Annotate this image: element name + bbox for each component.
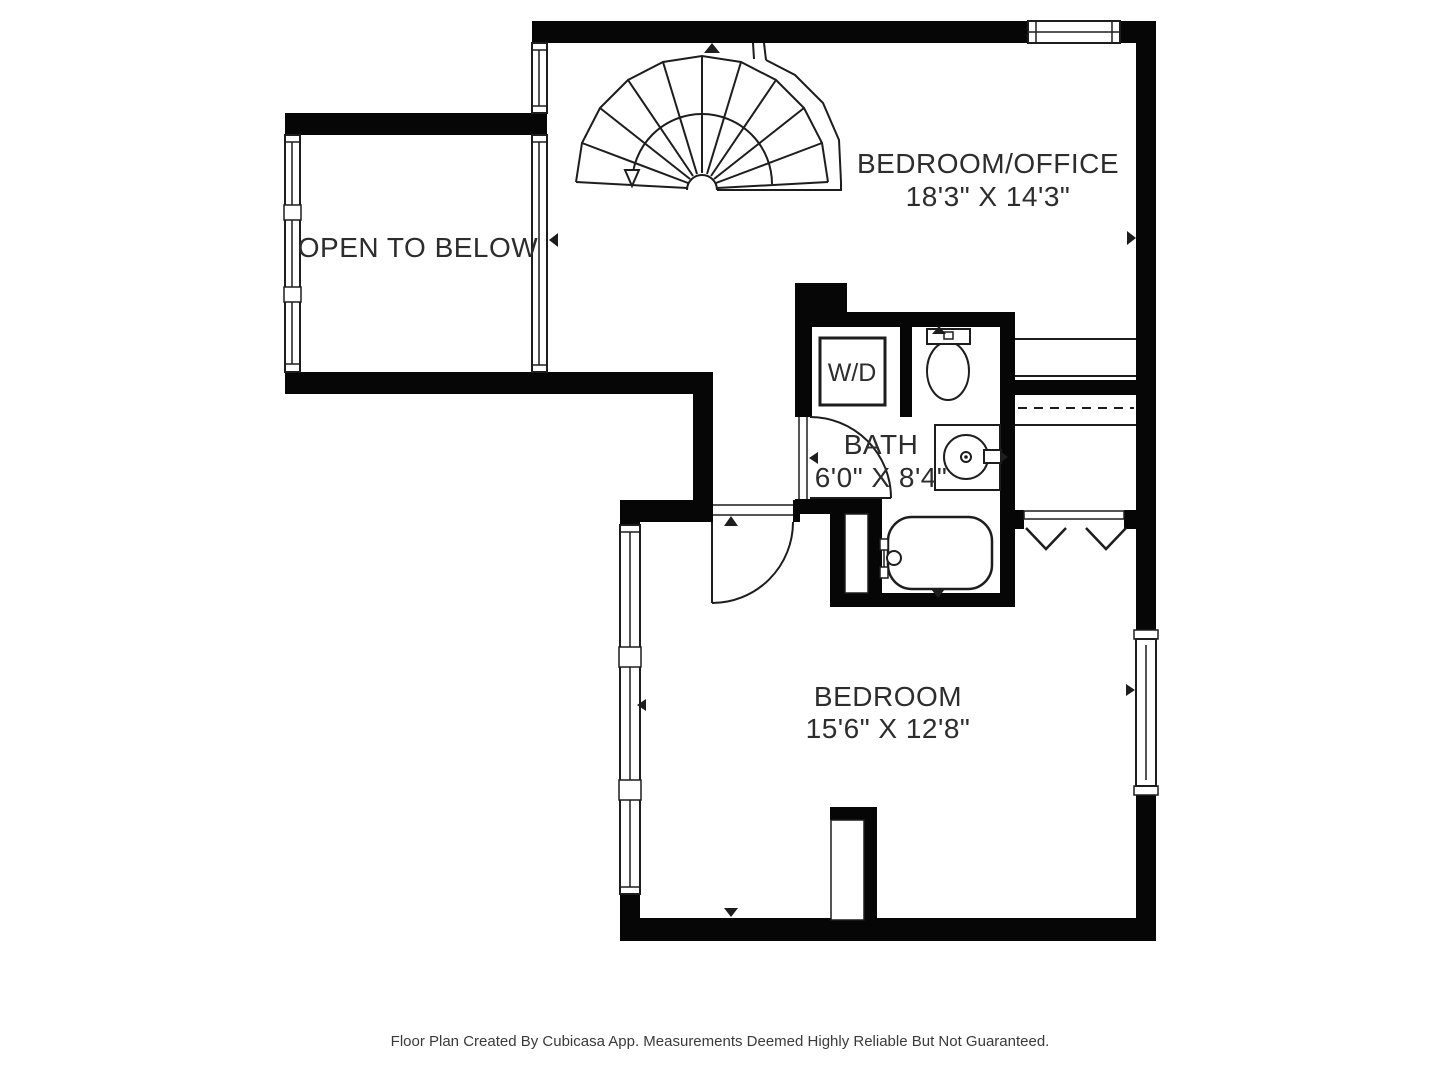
door-swing-arc xyxy=(712,522,793,603)
floor-plan-page: BEDROOM/OFFICE 18'3" X 14'3" OPEN TO BEL… xyxy=(0,0,1440,1080)
fixtures xyxy=(820,329,1001,920)
arrow-left-icon xyxy=(549,233,558,247)
stair-wall-connector xyxy=(764,43,766,60)
bifold-door-icon xyxy=(1026,528,1066,549)
window-mullion xyxy=(284,205,301,220)
bottom-wall xyxy=(620,918,1156,941)
footer-disclaimer: Floor Plan Created By Cubicasa App. Meas… xyxy=(0,1033,1440,1050)
top-window xyxy=(1028,21,1120,43)
toilet-flush-button xyxy=(944,332,953,339)
arrow-right-icon xyxy=(1126,684,1135,696)
open-below-bottom-wall xyxy=(285,372,713,394)
bedroom-left-wall-top xyxy=(620,500,640,525)
washer-dryer-label: W/D xyxy=(828,359,877,387)
bedroom-right-window xyxy=(1134,630,1158,795)
stair-direction-arrow-icon xyxy=(625,170,639,186)
wall-stub-niche xyxy=(831,820,864,920)
tub-faucet-bracket xyxy=(880,539,888,550)
stair-railing-upper xyxy=(532,43,547,113)
room-label-bedroom-office: BEDROOM/OFFICE xyxy=(857,148,1119,179)
spiral-staircase xyxy=(576,43,841,190)
stair-treads xyxy=(576,56,828,188)
room-label-open-to-below: OPEN TO BELOW xyxy=(298,232,538,263)
bath-top-wall xyxy=(847,312,1015,327)
room-label-bedroom: BEDROOM xyxy=(814,681,962,712)
corridor-left-wall xyxy=(693,372,713,522)
tub-bottom-wall xyxy=(830,593,1015,607)
bedroom-stub-cap xyxy=(830,807,877,820)
right-wall-upper xyxy=(1136,21,1156,395)
bath-left-wall xyxy=(795,312,812,417)
window-mullion xyxy=(619,780,641,800)
bedroom-door xyxy=(712,500,793,603)
stair-wall-connector xyxy=(753,43,754,59)
bedroom-left-window xyxy=(619,525,641,894)
stair-center-post xyxy=(687,175,717,190)
tub-faucet xyxy=(887,551,901,565)
bedroom-stub-bar xyxy=(864,820,877,920)
open-below-top-wall xyxy=(285,113,547,135)
closet-bifold-doors xyxy=(1024,511,1126,549)
arrow-down-icon xyxy=(724,908,738,917)
closet-door-track xyxy=(1024,511,1124,519)
window-mullion xyxy=(284,287,301,302)
closet-top-wall xyxy=(1000,380,1156,395)
bifold-door-icon xyxy=(1086,528,1126,549)
room-dimensions-bath: 6'0" X 8'4" xyxy=(815,462,948,493)
tub-left-inner-bar xyxy=(868,514,882,593)
bathtub-icon xyxy=(880,517,992,589)
room-dimensions-bedroom: 15'6" X 12'8" xyxy=(806,713,971,744)
right-wall-middle xyxy=(1136,395,1156,638)
arrow-up-icon xyxy=(704,43,720,53)
floor-plan-drawing: BEDROOM/OFFICE 18'3" X 14'3" OPEN TO BEL… xyxy=(0,0,1440,1080)
right-wall-lower xyxy=(1136,787,1156,941)
room-label-bath: BATH xyxy=(844,429,919,460)
toilet-icon xyxy=(927,329,970,400)
tub-faucet-bracket xyxy=(880,567,888,578)
bath-bottom-band xyxy=(795,499,882,514)
bathtub-outline xyxy=(888,517,992,589)
plumbing-chase xyxy=(845,514,868,593)
closet-jamb-left xyxy=(1009,510,1024,529)
room-dimensions-bedroom-office: 18'3" X 14'3" xyxy=(906,181,1071,212)
closet-jamb-right xyxy=(1124,510,1136,529)
bath-divider-wall xyxy=(900,312,912,417)
arrow-right-icon xyxy=(1127,231,1136,245)
window-mullion xyxy=(619,647,641,667)
top-wall-left xyxy=(532,21,1028,43)
sink-faucet xyxy=(984,450,1001,463)
